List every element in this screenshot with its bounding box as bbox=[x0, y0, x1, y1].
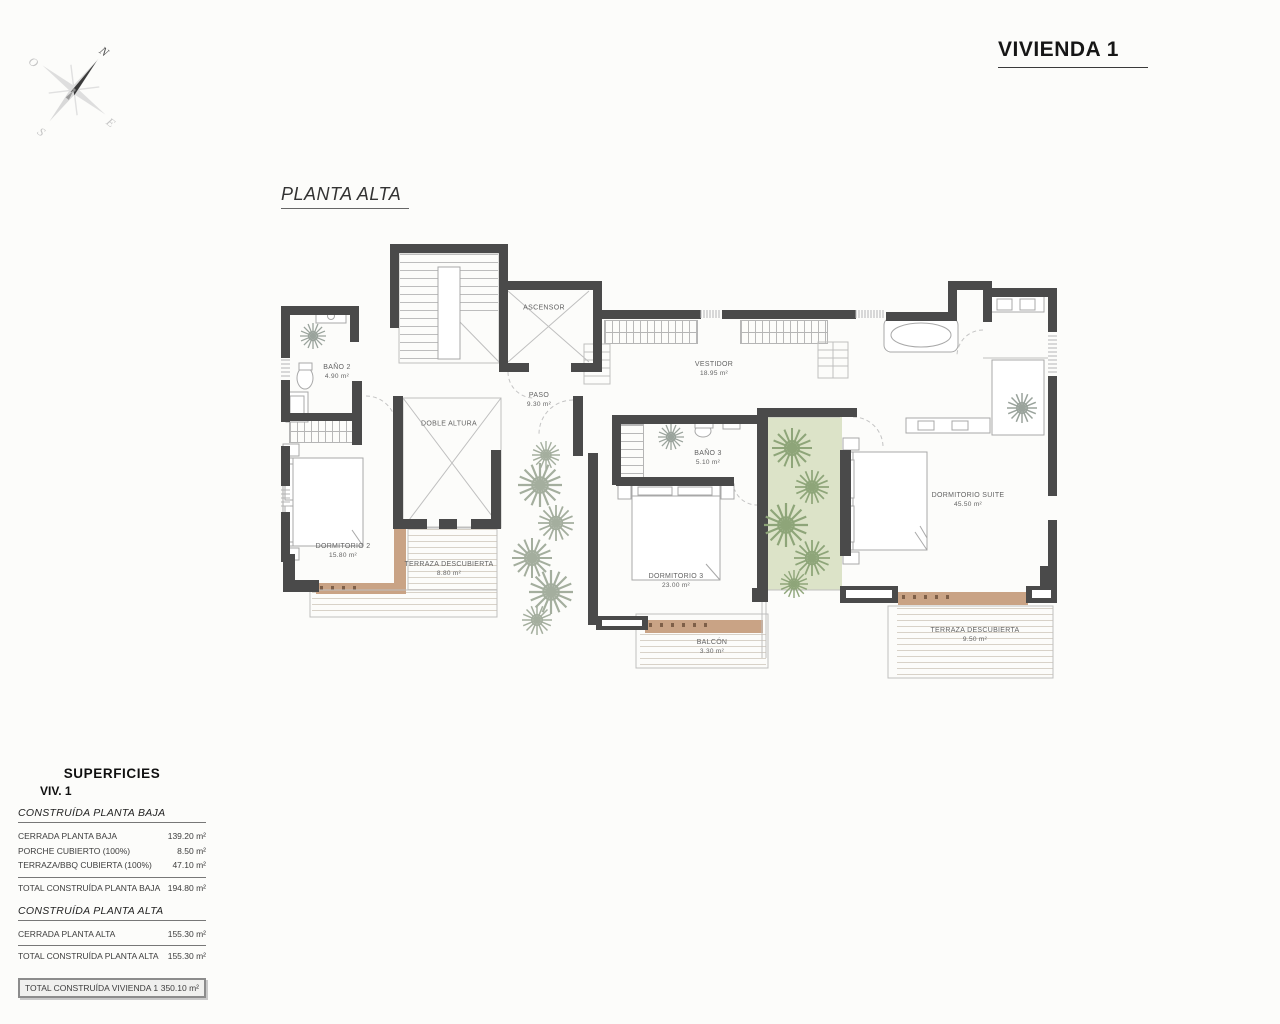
room-label-paso: PASO9.30 m² bbox=[527, 391, 551, 409]
surface-summary-table: SUPERFICIES VIV. 1 CONSTRUÍDA PLANTA BAJ… bbox=[18, 766, 206, 998]
room-label-dormitorio2: DORMITORIO 215.80 m² bbox=[316, 542, 371, 560]
summary-row: TERRAZA/BBQ CUBIERTA (100%) 47.10 m² bbox=[18, 858, 206, 873]
summary-row: CERRADA PLANTA BAJA 139.20 m² bbox=[18, 829, 206, 844]
courtyard-plants bbox=[512, 441, 574, 635]
room-label-vestidor: VESTIDOR18.95 m² bbox=[695, 360, 733, 378]
section-title-planta-alta: CONSTRUÍDA PLANTA ALTA bbox=[18, 905, 206, 921]
summary-subheading: VIV. 1 bbox=[40, 784, 206, 798]
room-label-dormitorio3: DORMITORIO 323.00 m² bbox=[649, 572, 704, 590]
wall-cores bbox=[602, 590, 1051, 626]
room-label-terraza-descubierta-2: TERRAZA DESCUBIERTA9.50 m² bbox=[930, 626, 1019, 644]
drawing-sheet: N O E S VIVIENDA 1 PLANTA ALTA bbox=[0, 0, 1280, 1024]
room-label-balcon: BALCÓN3.30 m² bbox=[697, 638, 728, 656]
summary-heading: SUPERFICIES bbox=[18, 766, 206, 781]
summary-divider bbox=[18, 945, 206, 946]
section-title-planta-baja: CONSTRUÍDA PLANTA BAJA bbox=[18, 807, 206, 823]
summary-row: CERRADA PLANTA ALTA 155.30 m² bbox=[18, 927, 206, 942]
room-label-doble-altura: DOBLE ALTURA bbox=[421, 420, 477, 429]
room-label-ascensor: ASCENSOR bbox=[523, 304, 565, 313]
summary-divider bbox=[18, 877, 206, 878]
summary-grand-total: TOTAL CONSTRUÍDA VIVIENDA 1 350.10 m² bbox=[18, 978, 206, 998]
summary-total-baja: TOTAL CONSTRUÍDA PLANTA BAJA 194.80 m² bbox=[18, 881, 206, 896]
summary-total-alta: TOTAL CONSTRUÍDA PLANTA ALTA 155.30 m² bbox=[18, 949, 206, 964]
room-label-bano2: BAÑO 24.90 m² bbox=[323, 363, 350, 381]
room-label-bano3: BAÑO 35.10 m² bbox=[694, 449, 721, 467]
room-label-terraza-descubierta-1: TERRAZA DESCUBIERTA8.80 m² bbox=[404, 560, 493, 578]
patio-plants bbox=[764, 428, 830, 598]
room-label-dormitorio-suite: DORMITORIO SUITE45.50 m² bbox=[932, 491, 1005, 509]
summary-row: PORCHE CUBIERTO (100%) 8.50 m² bbox=[18, 844, 206, 859]
